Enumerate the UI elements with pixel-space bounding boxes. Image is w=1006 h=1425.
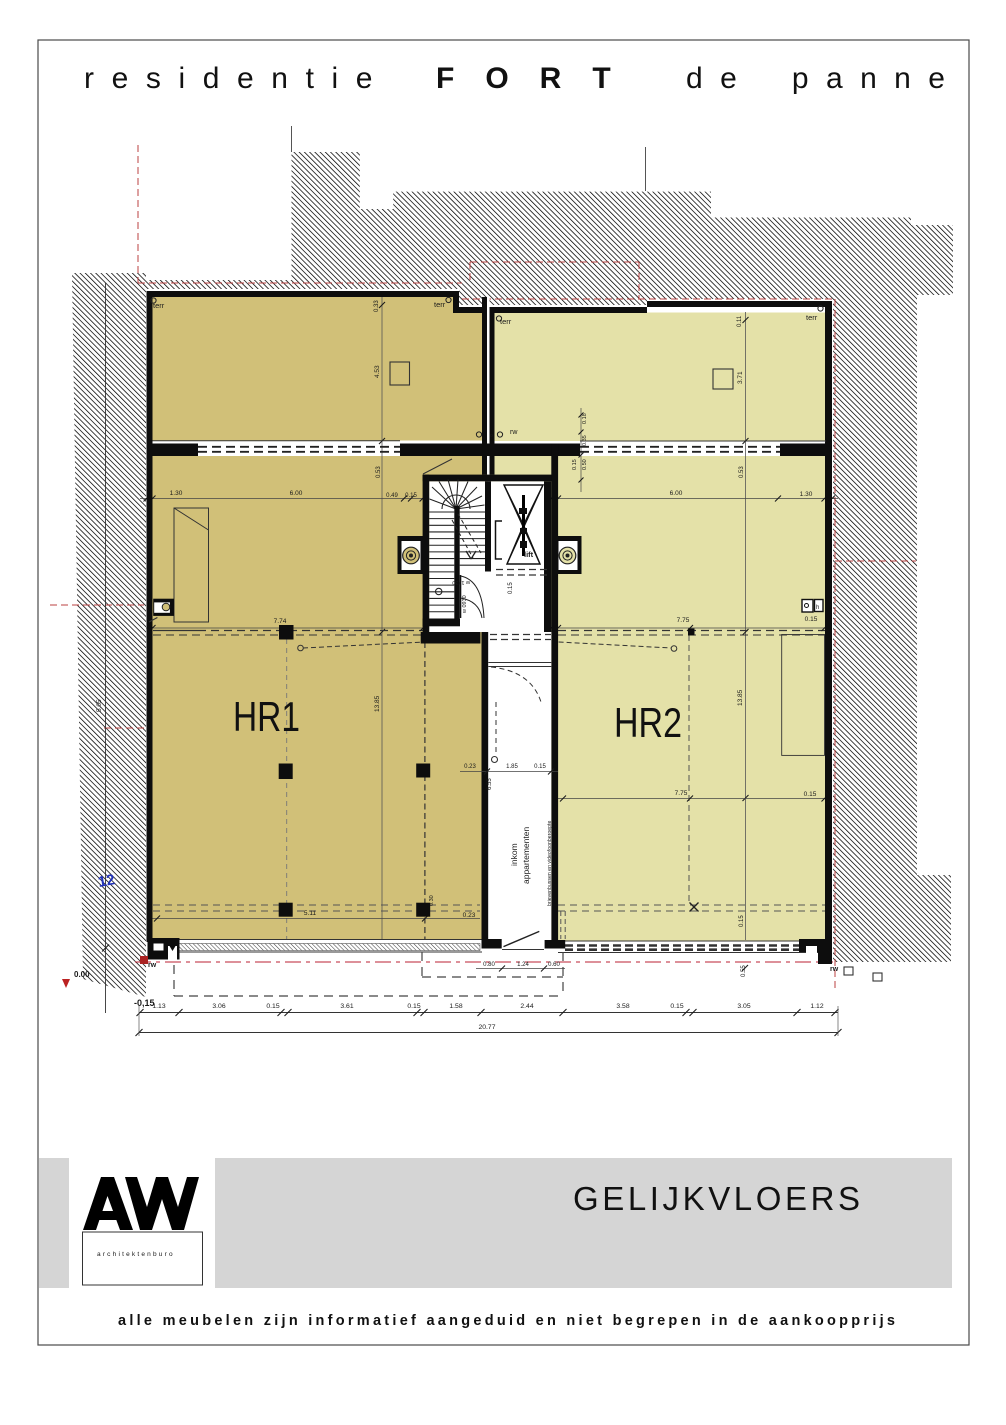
svg-text:6.55: 6.55: [487, 778, 493, 790]
svg-text:0.11: 0.11: [737, 315, 743, 327]
svg-text:inkom: inkom: [509, 843, 519, 866]
svg-text:0.00: 0.00: [74, 970, 90, 979]
svg-text:5.11: 5.11: [304, 910, 317, 917]
svg-text:0.49: 0.49: [386, 493, 398, 499]
svg-text:GELIJKVLOERS: GELIJKVLOERS: [573, 1180, 860, 1217]
svg-text:1.13: 1.13: [152, 1003, 165, 1010]
svg-text:3.61: 3.61: [340, 1003, 353, 1010]
svg-text:0.15: 0.15: [266, 1003, 279, 1010]
svg-text:5.05: 5.05: [96, 699, 103, 712]
svg-text:3.71: 3.71: [737, 371, 744, 384]
svg-text:HR1: HR1: [233, 693, 300, 740]
svg-text:terr: terr: [434, 300, 446, 309]
svg-text:13.85: 13.85: [374, 695, 381, 712]
svg-text:rw: rw: [148, 962, 157, 969]
svg-text:0.15: 0.15: [407, 1003, 420, 1010]
svg-text:13.85: 13.85: [737, 689, 744, 706]
svg-text:2.44: 2.44: [520, 1003, 533, 1010]
svg-text:terr: terr: [153, 301, 165, 310]
svg-text:1.85: 1.85: [506, 764, 518, 770]
svg-text:rw: rw: [510, 429, 518, 436]
svg-text:HR2: HR2: [614, 699, 682, 746]
svg-text:w 0930: w 0930: [462, 595, 468, 614]
svg-text:6.00: 6.00: [290, 490, 303, 497]
svg-text:brievenbussen en videofoonbero: brievenbussen en videofoonberoepte: [547, 821, 553, 906]
svg-text:terr: terr: [806, 313, 818, 322]
svg-text:1.24: 1.24: [517, 962, 529, 968]
svg-text:0.50: 0.50: [582, 459, 588, 470]
svg-text:rw: rw: [830, 966, 839, 973]
svg-text:1.30: 1.30: [170, 490, 183, 497]
svg-text:1.30: 1.30: [800, 491, 813, 498]
svg-text:de panne: de panne: [686, 62, 962, 95]
svg-text:0.33: 0.33: [374, 300, 380, 312]
svg-text:alle meubelen zijn informatief: alle meubelen zijn informatief aangeduid…: [118, 1313, 895, 1329]
svg-text:0.15: 0.15: [670, 1003, 683, 1010]
svg-text:lift: lift: [524, 550, 534, 559]
svg-text:7.75: 7.75: [675, 790, 688, 797]
svg-text:0.15: 0.15: [804, 791, 817, 798]
svg-text:4.53: 4.53: [374, 365, 381, 378]
svg-text:FORT: FORT: [436, 62, 642, 95]
svg-text:0.15: 0.15: [572, 459, 578, 470]
svg-text:1.58: 1.58: [449, 1003, 462, 1010]
svg-text:0.15: 0.15: [805, 616, 818, 623]
svg-text:0.18: 0.18: [582, 413, 588, 424]
svg-text:0.53: 0.53: [739, 466, 745, 478]
svg-text:1.12: 1.12: [810, 1003, 823, 1010]
svg-text:0.23: 0.23: [464, 764, 476, 770]
svg-text:3.06: 3.06: [212, 1003, 225, 1010]
svg-text:h: h: [816, 605, 819, 611]
svg-text:0.80: 0.80: [483, 962, 495, 968]
svg-text:0.53: 0.53: [376, 466, 382, 478]
svg-text:appartementen: appartementen: [521, 827, 531, 884]
svg-text:7.75: 7.75: [677, 617, 690, 624]
svg-text:0.15: 0.15: [405, 493, 417, 499]
svg-text:3.58: 3.58: [616, 1003, 629, 1010]
svg-text:0.23: 0.23: [463, 912, 476, 919]
svg-text:7.74: 7.74: [274, 618, 287, 625]
svg-text:w 1730: w 1730: [452, 579, 471, 585]
svg-text:12: 12: [97, 871, 116, 891]
svg-text:0.15: 0.15: [508, 582, 514, 594]
svg-text:architektenburo: architektenburo: [97, 1251, 175, 1258]
svg-text:20.77: 20.77: [478, 1024, 495, 1031]
svg-text:6.00: 6.00: [670, 490, 683, 497]
svg-text:0.60: 0.60: [548, 962, 560, 968]
svg-text:residentie: residentie: [84, 62, 390, 95]
svg-text:0.15: 0.15: [534, 764, 546, 770]
svg-text:o: o: [490, 433, 493, 439]
svg-text:3.05: 3.05: [737, 1003, 750, 1010]
svg-text:terr: terr: [500, 317, 512, 326]
svg-text:0.15: 0.15: [739, 915, 745, 927]
